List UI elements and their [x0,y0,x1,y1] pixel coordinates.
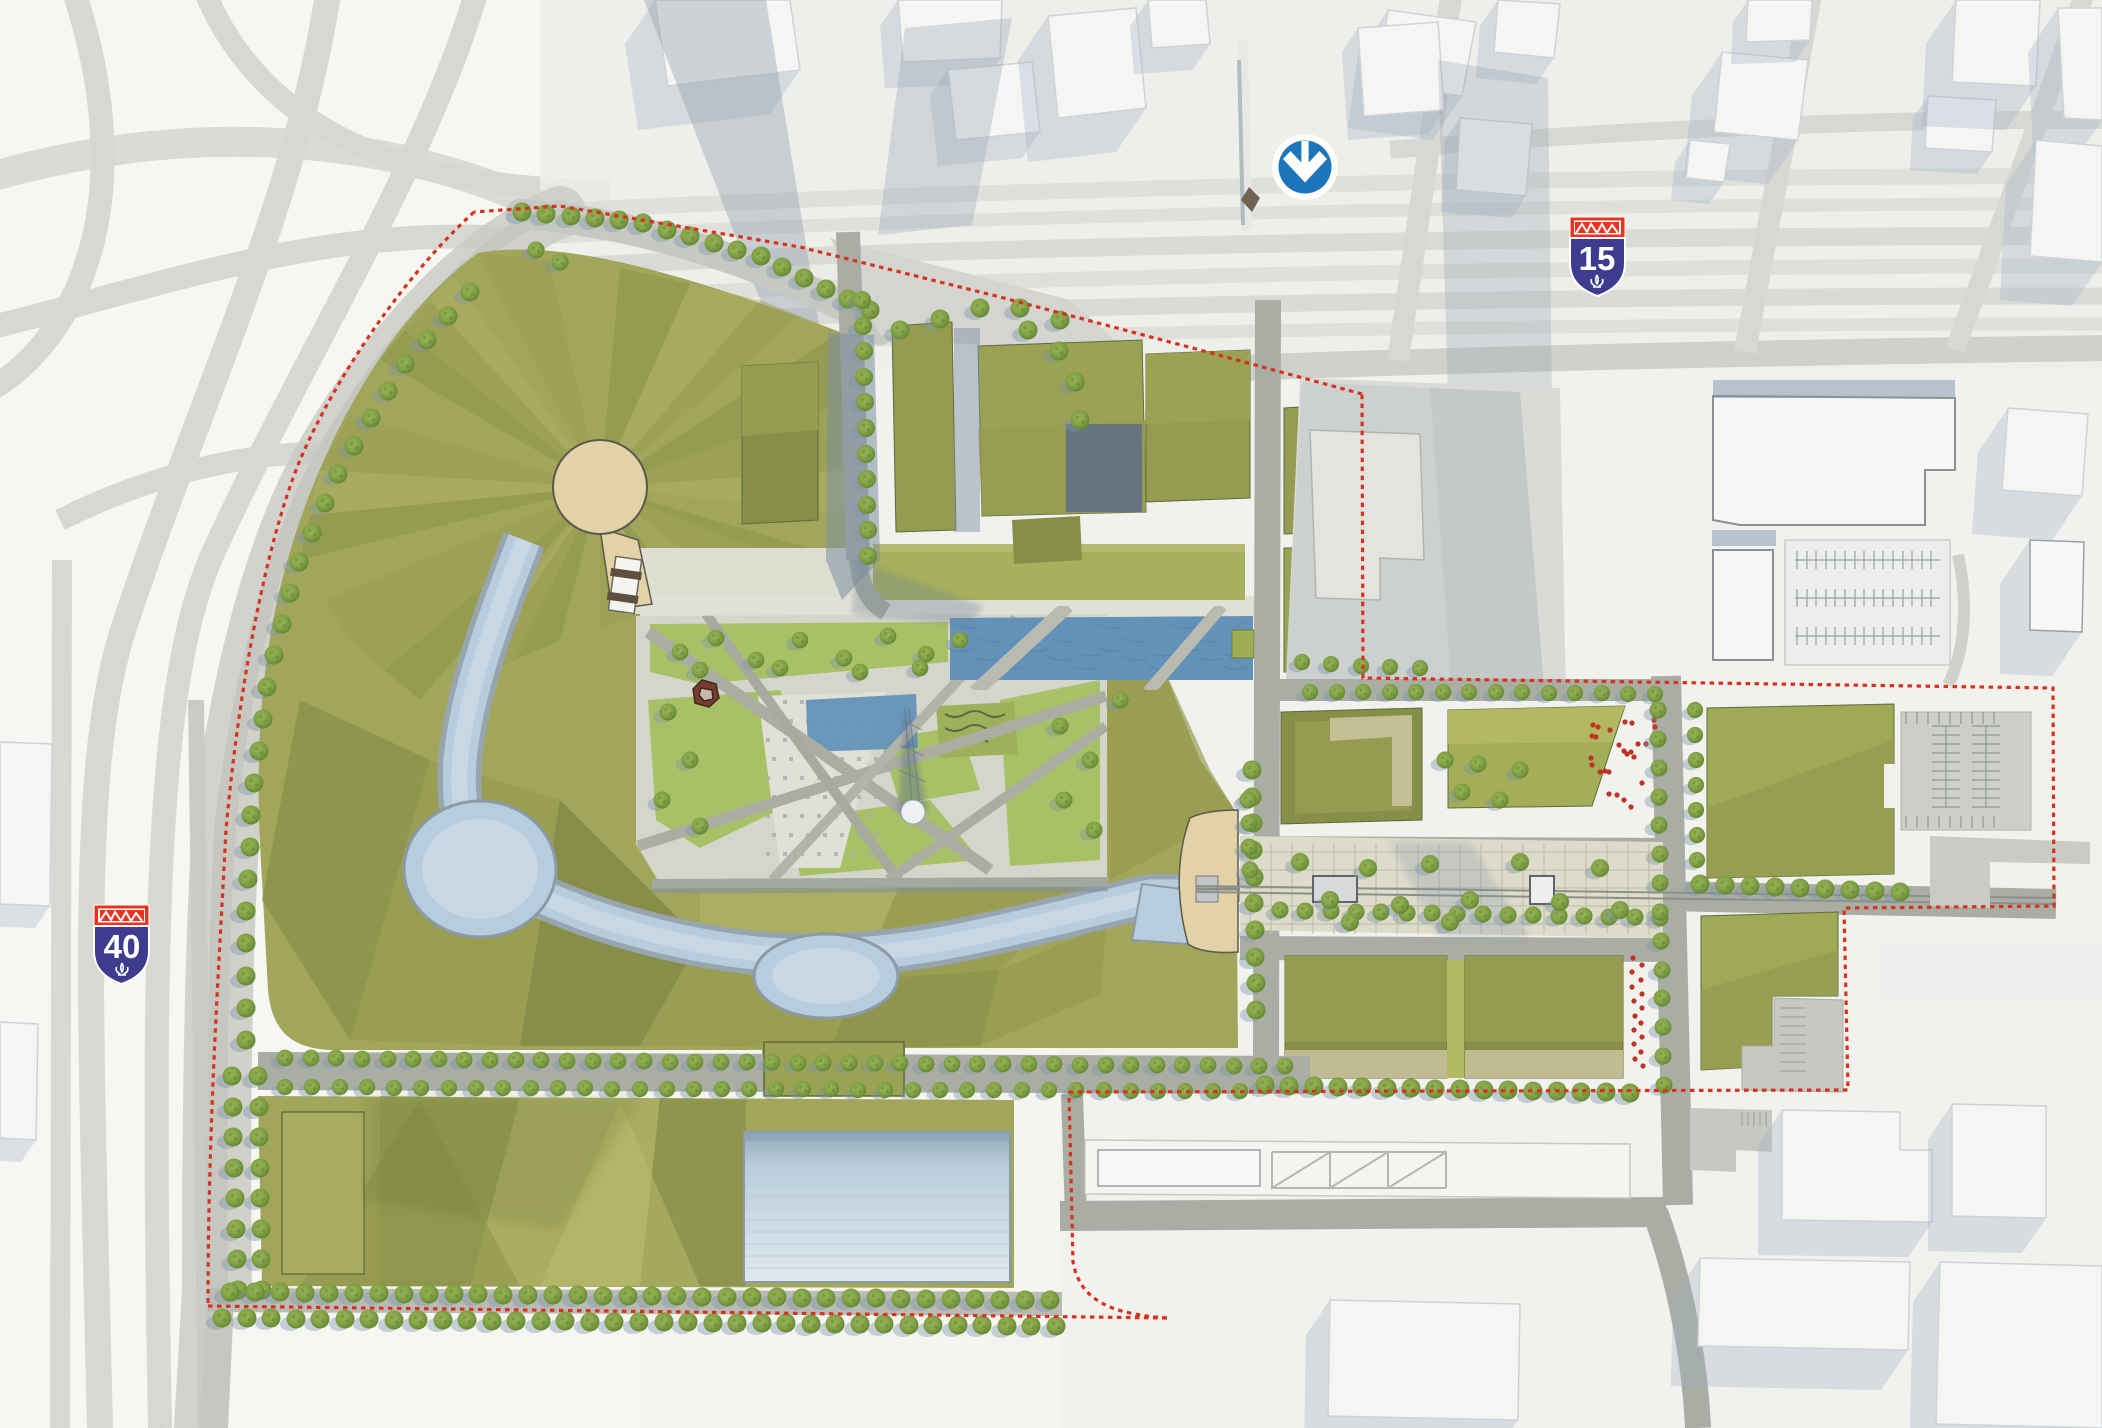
svg-text:15: 15 [1579,240,1616,277]
svg-text:40: 40 [104,928,141,965]
